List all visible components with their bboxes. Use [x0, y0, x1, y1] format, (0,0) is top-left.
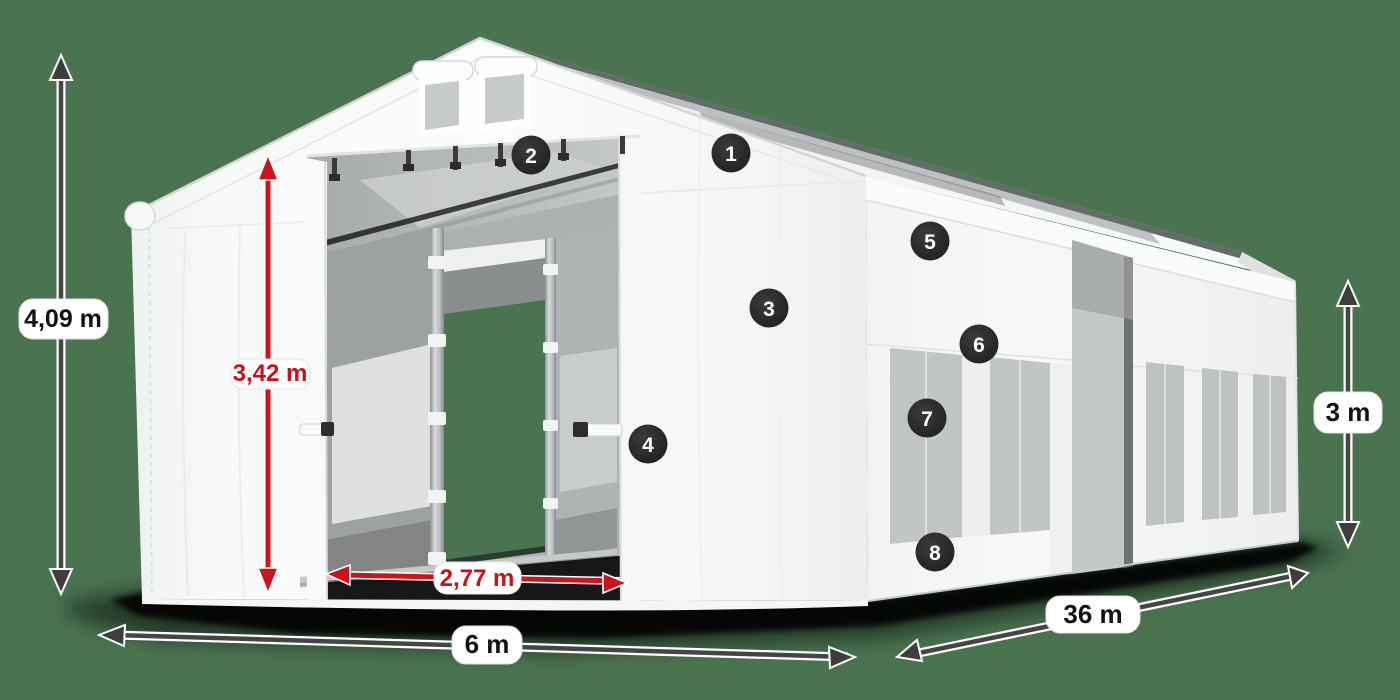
- svg-text:3,42 m: 3,42 m: [233, 360, 308, 387]
- svg-text:4,09 m: 4,09 m: [24, 305, 102, 333]
- svg-text:7: 7: [921, 408, 933, 431]
- svg-text:36 m: 36 m: [1063, 599, 1122, 629]
- svg-text:3: 3: [763, 298, 775, 321]
- svg-text:5: 5: [924, 231, 936, 254]
- svg-text:2,77 m: 2,77 m: [440, 565, 515, 592]
- svg-text:4: 4: [642, 434, 654, 457]
- svg-text:6 m: 6 m: [465, 629, 510, 659]
- svg-text:3 m: 3 m: [1326, 397, 1371, 427]
- svg-text:6: 6: [973, 334, 985, 357]
- svg-text:1: 1: [725, 143, 737, 166]
- svg-text:2: 2: [525, 145, 537, 168]
- svg-text:8: 8: [929, 542, 941, 565]
